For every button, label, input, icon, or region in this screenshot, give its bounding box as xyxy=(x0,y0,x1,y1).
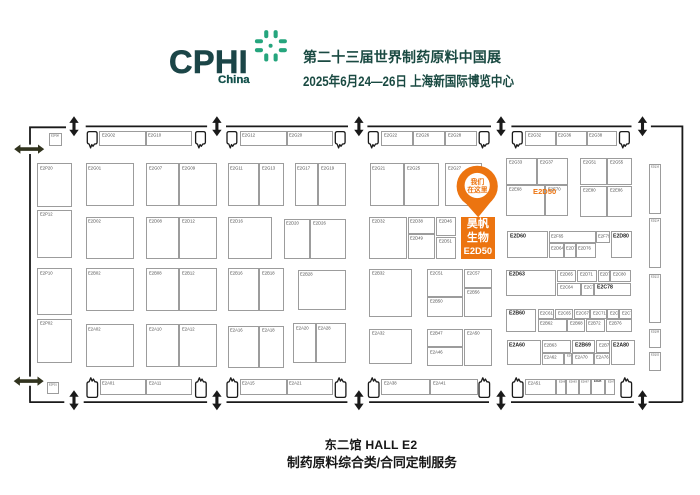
svg-text:在这里: 在这里 xyxy=(467,185,488,194)
svg-text:我们: 我们 xyxy=(471,177,485,186)
